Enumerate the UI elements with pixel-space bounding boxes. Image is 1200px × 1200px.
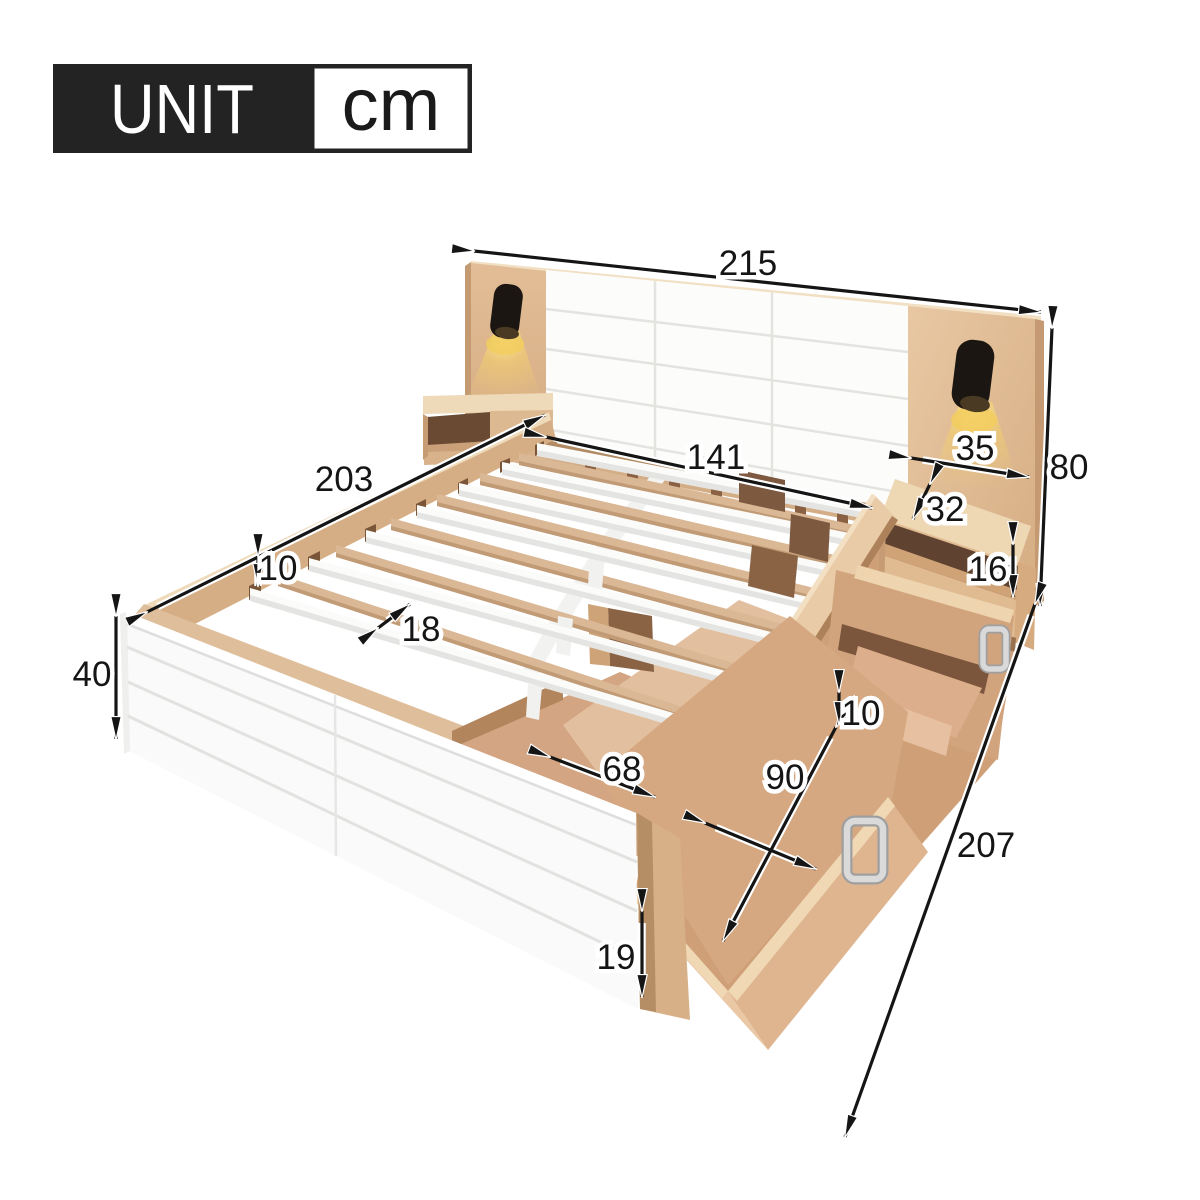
svg-text:cm: cm xyxy=(342,63,441,146)
svg-text:80: 80 xyxy=(1050,448,1089,487)
svg-text:90: 90 xyxy=(766,758,805,797)
svg-text:35: 35 xyxy=(956,429,995,468)
svg-text:16: 16 xyxy=(969,550,1008,589)
svg-text:141: 141 xyxy=(687,438,745,477)
svg-text:18: 18 xyxy=(402,610,441,649)
svg-text:40: 40 xyxy=(73,655,112,694)
svg-text:10: 10 xyxy=(842,694,881,733)
svg-text:68: 68 xyxy=(603,750,642,789)
svg-text:UNIT: UNIT xyxy=(110,70,254,148)
svg-text:207: 207 xyxy=(957,826,1015,865)
svg-text:19: 19 xyxy=(597,938,636,977)
svg-text:203: 203 xyxy=(315,460,373,499)
svg-text:32: 32 xyxy=(926,490,965,529)
svg-text:10: 10 xyxy=(259,549,298,588)
svg-text:215: 215 xyxy=(719,244,777,283)
